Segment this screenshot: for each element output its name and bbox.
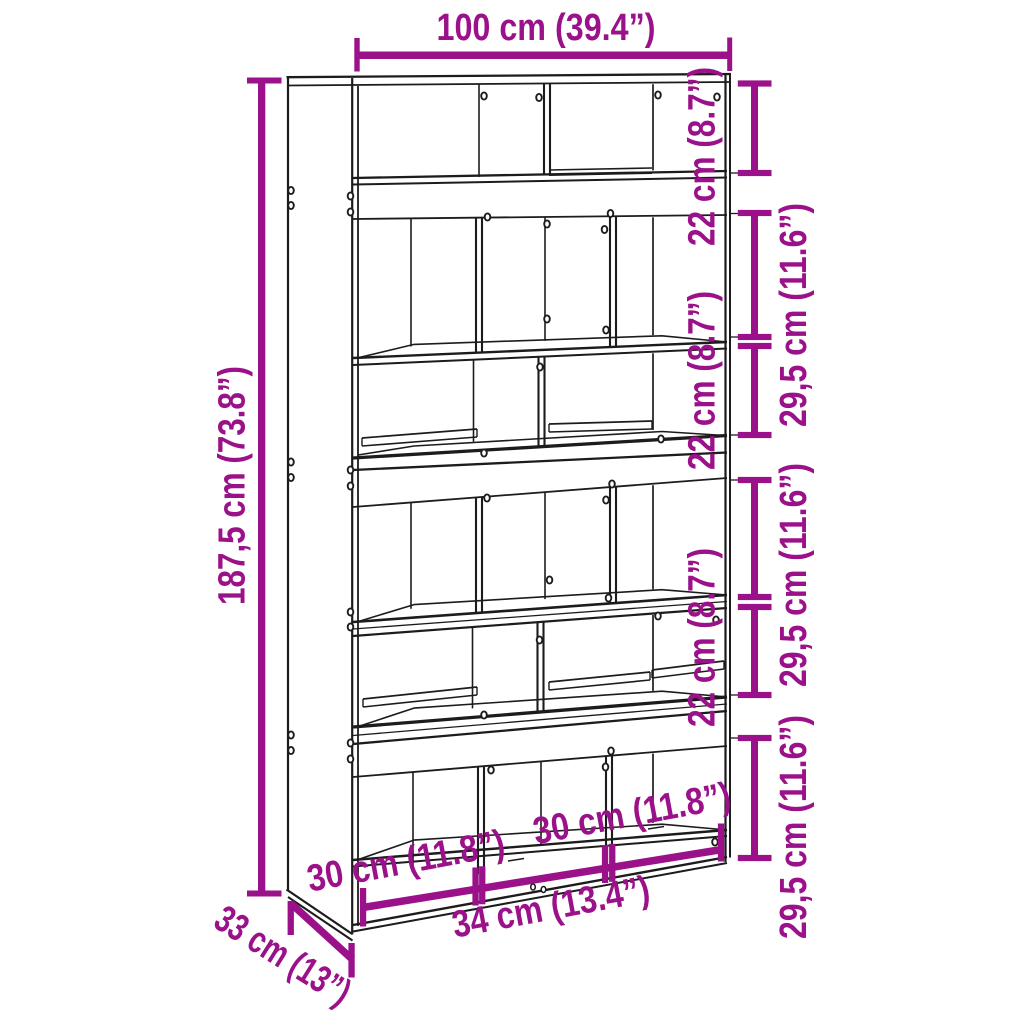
svg-text:29,5 cm (11.6”): 29,5 cm (11.6”) [773, 463, 815, 687]
svg-text:22 cm (8.7”): 22 cm (8.7”) [682, 291, 724, 470]
svg-text:100 cm (39.4”): 100 cm (39.4”) [437, 7, 656, 49]
svg-text:22 cm (8.7”): 22 cm (8.7”) [682, 548, 724, 727]
svg-text:22 cm (8.7”): 22 cm (8.7”) [682, 67, 724, 246]
svg-text:29,5 cm (11.6”): 29,5 cm (11.6”) [773, 203, 815, 427]
svg-text:187,5 cm (73.8”): 187,5 cm (73.8”) [212, 366, 254, 605]
svg-text:29,5 cm (11.6”): 29,5 cm (11.6”) [773, 715, 815, 939]
